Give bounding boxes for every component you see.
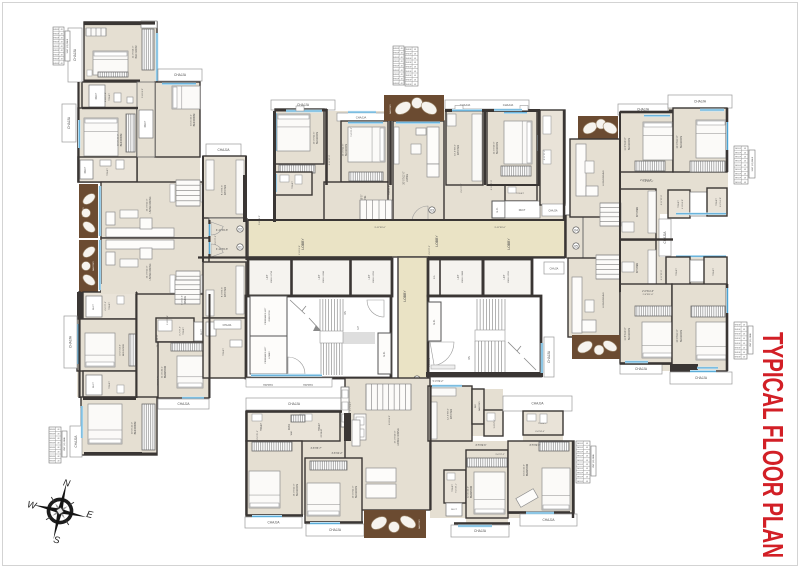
svg-text:9HSGF: 9HSGF (577, 481, 584, 483)
svg-text:LIFT: LIFT (457, 274, 460, 279)
svg-text:05: 05 (574, 244, 578, 248)
svg-text:2026 X 2159: 2026 X 2159 (508, 270, 510, 283)
svg-text:CHAJJA: CHAJJA (547, 350, 551, 363)
svg-text:9HSGF: 9HSGF (53, 59, 60, 61)
svg-text:5'-4"X9'-2": 5'-4"X9'-2" (433, 381, 444, 383)
svg-text:10'-0"X11'-6": 10'-0"X11'-6" (314, 132, 316, 145)
svg-text:8'-0"X5'-0": 8'-0"X5'-0" (257, 430, 259, 440)
svg-text:CHAJJA: CHAJJA (531, 402, 544, 406)
svg-text:48: 48 (414, 49, 416, 51)
svg-text:3'-11"X9'-6": 3'-11"X9'-6" (216, 229, 228, 232)
svg-text:9HSGF: 9HSGF (735, 334, 742, 336)
svg-text:CHAJJA: CHAJJA (356, 116, 367, 120)
svg-text:48: 48 (743, 324, 745, 326)
svg-text:UNIT (06) 2BHK: UNIT (06) 2BHK (752, 156, 754, 171)
svg-text:27'-0"X10'-0": 27'-0"X10'-0" (395, 430, 397, 443)
svg-text:9HSGF: 9HSGF (406, 71, 413, 73)
svg-text:48: 48 (61, 42, 63, 44)
svg-text:9HSGF: 9HSGF (577, 477, 584, 479)
svg-text:48: 48 (401, 61, 403, 63)
svg-text:E.D.: E.D. (432, 319, 436, 324)
svg-text:9HSGF: 9HSGF (49, 443, 56, 445)
svg-text:UNIT (10) 3BHK: UNIT (10) 3BHK (64, 436, 66, 450)
svg-text:10'-0"X11'-6": 10'-0"X11'-6" (343, 144, 345, 157)
svg-text:01: 01 (238, 245, 242, 249)
svg-text:48: 48 (57, 438, 59, 440)
svg-text:BEDROOM: BEDROOM (496, 142, 499, 154)
svg-text:UP: UP (357, 326, 360, 330)
svg-text:4'-11"X7'-6": 4'-11"X7'-6" (544, 150, 546, 161)
svg-text:9HSGF: 9HSGF (393, 57, 400, 59)
svg-text:CHAJJA: CHAJJA (635, 367, 648, 371)
svg-text:LIVING/DINING: LIVING/DINING (603, 170, 605, 186)
svg-text:9HSGF: 9HSGF (49, 461, 56, 463)
svg-text:UNIT (08) 3BHK: UNIT (08) 3BHK (593, 453, 595, 467)
svg-text:KITCHEN: KITCHEN (224, 184, 227, 195)
svg-text:48: 48 (61, 59, 63, 61)
svg-text:9HSGF: 9HSGF (406, 66, 413, 68)
svg-text:10'-0"X12'-0": 10'-0"X12'-0" (294, 483, 296, 496)
svg-text:12'-0"X8'-0": 12'-0"X8'-0" (448, 408, 450, 420)
svg-text:9HSGF: 9HSGF (49, 438, 56, 440)
svg-text:10'-6"X11'-0": 10'-6"X11'-0" (353, 486, 355, 499)
svg-text:DUCT: DUCT (145, 120, 147, 127)
svg-text:BEDROOM: BEDROOM (316, 132, 319, 144)
svg-text:4'-6"X7'-6": 4'-6"X7'-6" (105, 92, 107, 102)
svg-text:E.D.: E.D. (496, 207, 499, 212)
svg-text:TOILET: TOILET (716, 198, 718, 206)
svg-text:2'-6"X9'-6": 2'-6"X9'-6" (299, 245, 301, 255)
svg-text:DN: DN (344, 311, 347, 315)
svg-text:48: 48 (414, 53, 416, 55)
svg-text:48: 48 (61, 63, 63, 65)
svg-text:48: 48 (414, 66, 416, 68)
svg-text:BEDROOM: BEDROOM (345, 144, 348, 156)
svg-text:2'-6"X7'-0": 2'-6"X7'-0" (461, 183, 463, 193)
svg-text:9HSGF: 9HSGF (53, 54, 60, 56)
svg-text:2'-0"X11'-6": 2'-0"X11'-6" (642, 291, 654, 293)
svg-text:48: 48 (414, 84, 416, 86)
svg-text:9HSGF: 9HSGF (735, 169, 742, 171)
svg-text:BED ROOM: BED ROOM (194, 114, 196, 127)
svg-text:6'-0"X4'-0": 6'-0"X4'-0" (535, 431, 545, 433)
svg-text:CHAJJA: CHAJJA (303, 383, 313, 387)
svg-text:DUCT: DUCT (519, 209, 526, 212)
svg-text:BEDROOM: BEDROOM (296, 484, 299, 496)
svg-text:LOBBY: LOBBY (403, 290, 407, 302)
svg-text:TOILET: TOILET (538, 423, 546, 425)
svg-text:10'-0"X11'-0": 10'-0"X11'-0" (677, 135, 679, 148)
svg-text:CHAJJA: CHAJJA (542, 518, 555, 522)
svg-text:9HSGF: 9HSGF (577, 472, 584, 474)
svg-text:9HSGF: 9HSGF (53, 37, 60, 39)
svg-text:TYPICAL FLOOR PLAN: TYPICAL FLOOR PLAN (756, 332, 788, 558)
svg-text:CHAJJA: CHAJJA (329, 528, 342, 532)
svg-text:9HSGF: 9HSGF (49, 456, 56, 458)
svg-text:6'-0"X4'-1": 6'-0"X4'-1" (456, 483, 458, 493)
svg-text:48: 48 (414, 79, 416, 81)
svg-text:48: 48 (586, 477, 588, 479)
svg-text:LIFT: LIFT (503, 274, 506, 279)
svg-text:9HSGF: 9HSGF (406, 53, 413, 55)
svg-text:TOILET: TOILET (292, 181, 294, 189)
svg-text:TOILET: TOILET (109, 381, 111, 389)
svg-text:F.TOILET: F.TOILET (321, 428, 323, 437)
svg-text:48: 48 (57, 434, 59, 436)
svg-text:11'-0"X10'-0": 11'-0"X10'-0" (625, 137, 627, 150)
svg-text:TOILET: TOILET (223, 348, 225, 356)
svg-text:48: 48 (743, 352, 745, 354)
svg-text:8'-5"X9'-6": 8'-5"X9'-6" (476, 445, 487, 447)
svg-text:48: 48 (57, 452, 59, 454)
svg-text:TOILET: TOILET (516, 193, 524, 195)
svg-text:DUCT: DUCT (451, 509, 458, 511)
svg-text:7'-5"X4'-8": 7'-5"X4'-8" (158, 376, 160, 386)
svg-text:48: 48 (586, 472, 588, 474)
svg-text:DINING: DINING (185, 296, 187, 304)
svg-text:9HSGF: 9HSGF (49, 429, 56, 431)
svg-text:TOILET: TOILET (676, 268, 678, 276)
svg-text:03: 03 (430, 208, 434, 212)
svg-text:10'-0"X12'-0": 10'-0"X12'-0" (118, 134, 120, 146)
svg-text:48: 48 (744, 152, 746, 154)
svg-text:48: 48 (57, 447, 59, 449)
svg-text:5'-8"X3'-5": 5'-8"X3'-5" (259, 215, 261, 225)
svg-text:LIFT: LIFT (266, 274, 269, 279)
svg-text:CHAJJA: CHAJJA (267, 521, 280, 525)
svg-text:CHAJJA: CHAJJA (67, 116, 71, 129)
svg-text:LIVING/ DINING: LIVING/ DINING (397, 428, 400, 446)
svg-text:48: 48 (586, 451, 588, 453)
svg-text:48: 48 (744, 178, 746, 180)
svg-text:9HSGF: 9HSGF (53, 63, 60, 65)
svg-text:5'-8"X3'-5": 5'-8"X3'-5" (142, 88, 144, 98)
svg-text:DUCT: DUCT (93, 381, 95, 388)
svg-text:2'-0"X11'-6": 2'-0"X11'-6" (643, 181, 654, 183)
svg-text:3'-11"X9'-6": 3'-11"X9'-6" (374, 227, 385, 229)
svg-text:CHAJJA: CHAJJA (174, 73, 187, 77)
svg-text:9HSGF: 9HSGF (577, 456, 584, 458)
svg-text:48: 48 (57, 443, 59, 445)
svg-text:48: 48 (586, 456, 588, 458)
svg-text:48: 48 (743, 338, 745, 340)
svg-text:9HSGF: 9HSGF (393, 48, 400, 50)
svg-text:9HSGF: 9HSGF (735, 347, 742, 349)
svg-text:12'-0"X11'-0": 12'-0"X11'-0" (468, 486, 470, 498)
svg-text:9HSGF: 9HSGF (49, 434, 56, 436)
svg-text:48: 48 (401, 48, 403, 50)
svg-text:E.D.: E.D. (382, 351, 386, 356)
svg-text:CHAJJA: CHAJJA (695, 376, 708, 380)
svg-text:9HSGF: 9HSGF (393, 61, 400, 63)
svg-text:48: 48 (414, 58, 416, 60)
svg-text:9HSGF: 9HSGF (735, 178, 742, 180)
svg-text:10'-0"X14'-0": 10'-0"X14'-0" (132, 422, 134, 434)
svg-text:48: 48 (743, 357, 745, 359)
svg-text:48: 48 (586, 443, 588, 445)
svg-text:48: 48 (414, 62, 416, 64)
svg-text:11'-0"X14'-0": 11'-0"X14'-0" (133, 46, 135, 59)
svg-text:9HSGF: 9HSGF (735, 165, 742, 167)
svg-text:9HSGF: 9HSGF (577, 468, 584, 470)
svg-text:48: 48 (414, 71, 416, 73)
svg-text:10'-0"X11'-2": 10'-0"X11'-2" (191, 114, 193, 126)
svg-text:2026 X 2159: 2026 X 2159 (373, 270, 375, 283)
svg-text:48: 48 (744, 182, 746, 184)
svg-text:4'-11"X3'-9": 4'-11"X3'-9" (329, 155, 331, 166)
svg-text:LIVING/DINING: LIVING/DINING (603, 292, 605, 308)
svg-text:4'-11"X3'-9": 4'-11"X3'-9" (661, 270, 663, 281)
svg-text:8'-5"X9'-6": 8'-5"X9'-6" (530, 445, 541, 447)
svg-text:9HSGF: 9HSGF (393, 74, 400, 76)
svg-text:48: 48 (744, 148, 746, 150)
svg-text:DUCT: DUCT (93, 303, 95, 310)
svg-text:10'-0"X11'-0": 10'-0"X11'-0" (524, 464, 526, 476)
svg-text:9HSGF: 9HSGF (393, 78, 400, 80)
svg-text:48: 48 (743, 334, 745, 336)
svg-text:LOBBY: LOBBY (507, 238, 511, 250)
svg-text:48: 48 (61, 37, 63, 39)
svg-text:BED ROOM: BED ROOM (123, 344, 125, 356)
svg-text:9HSGF: 9HSGF (393, 70, 400, 72)
svg-text:9HSGF: 9HSGF (53, 42, 60, 44)
svg-text:9HSGF: 9HSGF (577, 443, 584, 445)
svg-text:48: 48 (414, 75, 416, 77)
svg-text:LIVING: LIVING (406, 174, 409, 182)
svg-text:KITCHEN: KITCHEN (450, 408, 453, 419)
svg-text:9HSGF: 9HSGF (53, 29, 60, 31)
svg-text:3'-11"X9'-6": 3'-11"X9'-6" (494, 227, 505, 229)
svg-text:2026 X 3000: 2026 X 3000 (462, 270, 464, 283)
svg-text:CHAJJA: CHAJJA (177, 402, 190, 406)
svg-text:26'-3"X19'-9": 26'-3"X19'-9" (157, 334, 159, 347)
svg-text:4'-6"X7'-6": 4'-6"X7'-6" (105, 301, 107, 311)
svg-text:9HSGF: 9HSGF (406, 58, 413, 60)
svg-text:48: 48 (744, 169, 746, 171)
svg-text:48: 48 (401, 83, 403, 85)
svg-text:DUCT: DUCT (96, 92, 98, 99)
svg-text:CHAJJA: CHAJJA (694, 100, 707, 104)
svg-text:LIFT: LIFT (318, 274, 321, 279)
svg-text:TOILET: TOILET (183, 327, 185, 335)
svg-text:10'-0"X11'-0": 10'-0"X11'-0" (677, 329, 679, 342)
svg-text:LIFT: LIFT (368, 274, 371, 279)
svg-text:9HSGF: 9HSGF (735, 148, 742, 150)
svg-text:9HSGF: 9HSGF (735, 182, 742, 184)
svg-text:23'-0"X12'-0": 23'-0"X12'-0" (147, 198, 149, 211)
svg-text:UNIT (05) 2BHK: UNIT (05) 2BHK (750, 332, 752, 346)
svg-text:TOILET: TOILET (261, 422, 263, 431)
svg-text:48: 48 (61, 29, 63, 31)
svg-text:11'-6"X10'-0": 11'-6"X10'-0" (625, 327, 627, 340)
svg-text:48: 48 (586, 481, 588, 483)
svg-text:TOILET: TOILET (713, 268, 715, 276)
svg-text:9HSGF: 9HSGF (406, 75, 413, 77)
svg-text:5'-8"X3'-5": 5'-8"X3'-5" (389, 185, 391, 195)
svg-text:BEDROOM: BEDROOM (628, 328, 631, 340)
svg-text:23'-0"X12'-0": 23'-0"X12'-0" (147, 265, 149, 278)
svg-text:KITCHEN: KITCHEN (457, 144, 460, 155)
svg-text:CHAJJA: CHAJJA (74, 435, 78, 448)
svg-text:4'-7"X7'-6": 4'-7"X7'-6" (180, 326, 182, 336)
svg-text:48: 48 (744, 173, 746, 175)
svg-text:48: 48 (401, 74, 403, 76)
svg-text:12'-6"X10'-0": 12'-6"X10'-0" (494, 141, 496, 154)
svg-text:48: 48 (744, 156, 746, 158)
svg-text:LOBBY: LOBBY (301, 238, 305, 250)
svg-text:02: 02 (238, 227, 242, 231)
svg-text:48: 48 (586, 460, 588, 462)
svg-text:9HSGF: 9HSGF (735, 161, 742, 163)
svg-text:CHAJJA: CHAJJA (69, 335, 73, 348)
svg-text:9HSGF: 9HSGF (393, 83, 400, 85)
svg-text:CHAJJA: CHAJJA (73, 48, 77, 61)
svg-text:5'-8"X3'-5": 5'-8"X3'-5" (351, 127, 353, 137)
svg-text:4'-0"X6'-0": 4'-0"X6'-0" (682, 199, 684, 209)
svg-text:9HSGF: 9HSGF (735, 338, 742, 340)
svg-text:2'-6"X7'-0": 2'-6"X7'-0" (429, 245, 431, 255)
svg-text:48: 48 (586, 447, 588, 449)
svg-text:LOBBY: LOBBY (269, 351, 271, 359)
svg-text:8'-0"X9'-6": 8'-0"X9'-6" (222, 185, 224, 195)
svg-text:9'-7"X3'-7": 9'-7"X3'-7" (350, 401, 352, 411)
svg-text:9HSGF: 9HSGF (735, 152, 742, 154)
svg-text:48: 48 (61, 50, 63, 52)
svg-text:9HSGF: 9HSGF (577, 451, 584, 453)
svg-text:BEDROOM: BEDROOM (165, 366, 167, 378)
svg-text:48: 48 (57, 456, 59, 458)
svg-text:2026 X 2750: 2026 X 2750 (271, 270, 273, 283)
svg-text:CHAJJA: CHAJJA (474, 529, 487, 533)
svg-text:9HSGF: 9HSGF (53, 50, 60, 52)
svg-text:5'-4"X9'-2": 5'-4"X9'-2" (429, 357, 431, 367)
svg-text:TOILET: TOILET (109, 93, 111, 101)
svg-text:BEDROOM: BEDROOM (355, 486, 358, 498)
svg-text:48: 48 (743, 347, 745, 349)
svg-text:9HSGF: 9HSGF (49, 447, 56, 449)
svg-text:10'-0"X12'-0": 10'-0"X12'-0" (120, 344, 122, 356)
svg-text:DRY: DRY (475, 403, 477, 408)
svg-text:20'-0"X11'-0": 20'-0"X11'-0" (404, 171, 406, 184)
svg-text:9HSGF: 9HSGF (53, 33, 60, 35)
svg-text:CHAJJA: CHAJJA (288, 402, 301, 406)
svg-text:2000X2700: 2000X2700 (269, 310, 271, 322)
svg-text:48: 48 (744, 165, 746, 167)
svg-text:9HSGF: 9HSGF (406, 84, 413, 86)
svg-text:48: 48 (586, 468, 588, 470)
svg-text:9HSGF: 9HSGF (406, 49, 413, 51)
svg-text:48: 48 (401, 70, 403, 72)
svg-text:BED ROOM: BED ROOM (121, 134, 123, 147)
svg-text:8'-0"X8'-5": 8'-0"X8'-5" (389, 415, 391, 425)
svg-text:8'-0"X9'-6": 8'-0"X9'-6" (222, 287, 224, 297)
svg-text:3'-6"X5'-7": 3'-6"X5'-7" (310, 447, 321, 450)
svg-text:3'-0"X7'-5": 3'-0"X7'-5" (494, 419, 496, 428)
svg-text:48: 48 (61, 54, 63, 56)
svg-text:W.M.: W.M. (291, 430, 293, 435)
svg-text:4'-6"X7'-6": 4'-6"X7'-6" (215, 235, 217, 245)
svg-text:48: 48 (401, 52, 403, 54)
svg-text:9HSGF: 9HSGF (735, 343, 742, 345)
svg-text:LIVING/DINING: LIVING/DINING (149, 196, 152, 213)
svg-text:9HSGF: 9HSGF (735, 352, 742, 354)
svg-text:BED ROOM: BED ROOM (135, 422, 137, 435)
svg-text:9HSGF: 9HSGF (406, 62, 413, 64)
svg-text:KITCHEN: KITCHEN (224, 286, 227, 297)
svg-text:9HSGF: 9HSGF (577, 447, 584, 449)
svg-text:4'-11"X3'-9": 4'-11"X3'-9" (661, 195, 663, 206)
svg-text:9HSGF: 9HSGF (393, 65, 400, 67)
svg-text:2026 X 2286: 2026 X 2286 (323, 270, 325, 283)
svg-text:BEDROOM: BEDROOM (628, 138, 631, 150)
svg-text:LIVING/DINING: LIVING/DINING (149, 263, 152, 280)
svg-text:3'-6"X4'-2": 3'-6"X4'-2" (331, 452, 342, 455)
svg-text:TOILET: TOILET (107, 168, 109, 176)
svg-text:9HSGF: 9HSGF (406, 79, 413, 81)
svg-text:9'-0"X5'-6": 9'-0"X5'-6" (167, 315, 169, 325)
svg-text:48: 48 (586, 464, 588, 466)
svg-text:9HSGF: 9HSGF (577, 464, 584, 466)
svg-text:48: 48 (61, 46, 63, 48)
svg-text:BEDROOM: BEDROOM (680, 330, 683, 342)
svg-text:48: 48 (401, 65, 403, 67)
svg-text:9HSGF: 9HSGF (393, 52, 400, 54)
svg-text:TOILET: TOILET (452, 484, 454, 492)
svg-text:9'-0"X5'-6": 9'-0"X5'-6" (182, 295, 184, 305)
svg-text:TOILET: TOILET (678, 200, 680, 208)
svg-text:3'-0"X7'-5": 3'-0"X7'-5" (495, 454, 505, 456)
svg-text:48: 48 (401, 57, 403, 59)
svg-text:CHAJJA: CHAJJA (217, 148, 230, 152)
svg-text:DN: DN (468, 356, 471, 360)
svg-text:9HSGF: 9HSGF (577, 460, 584, 462)
svg-text:BEDROOM: BEDROOM (680, 136, 683, 148)
svg-text:48: 48 (744, 161, 746, 163)
svg-text:48: 48 (61, 33, 63, 35)
svg-text:9HSGF: 9HSGF (53, 46, 60, 48)
svg-text:KITCHEN: KITCHEN (637, 207, 639, 217)
svg-text:9HSGF: 9HSGF (735, 173, 742, 175)
svg-text:BED ROOM: BED ROOM (135, 45, 138, 58)
svg-text:CHAJJA: CHAJJA (503, 103, 514, 107)
svg-text:CHAJJA: CHAJJA (263, 383, 273, 387)
svg-text:F.D.: F.D. (434, 275, 436, 279)
svg-text:9HSGF: 9HSGF (49, 452, 56, 454)
svg-text:9HSGF: 9HSGF (735, 357, 742, 359)
svg-text:48: 48 (401, 78, 403, 80)
svg-text:48: 48 (743, 343, 745, 345)
svg-text:UNIT (02) 3BHK: UNIT (02) 3BHK (67, 38, 69, 53)
svg-text:2'-0"X11'-6": 2'-0"X11'-6" (643, 294, 654, 296)
svg-text:TOILET: TOILET (109, 302, 111, 310)
svg-text:CHAJJA: CHAJJA (663, 231, 667, 244)
svg-text:10'-0"X8'-0": 10'-0"X8'-0" (455, 144, 457, 156)
svg-text:6'-2"X4'-0": 6'-2"X4'-0" (720, 197, 722, 207)
svg-text:LOBBY: LOBBY (435, 235, 439, 247)
svg-text:9HSGF: 9HSGF (735, 329, 742, 331)
svg-text:9HSGF: 9HSGF (735, 324, 742, 326)
svg-text:48: 48 (57, 429, 59, 431)
svg-text:CHAJJA: CHAJJA (548, 210, 557, 213)
svg-text:48: 48 (57, 461, 59, 463)
svg-text:04: 04 (574, 228, 578, 232)
svg-text:BEDROOM: BEDROOM (527, 464, 529, 476)
svg-text:KITCHEN: KITCHEN (637, 263, 639, 273)
svg-text:48: 48 (743, 329, 745, 331)
svg-text:9HSGF: 9HSGF (735, 156, 742, 158)
svg-text:DUCT: DUCT (85, 166, 87, 173)
svg-text:11'-0"X10'-4": 11'-0"X10'-4" (162, 366, 164, 378)
